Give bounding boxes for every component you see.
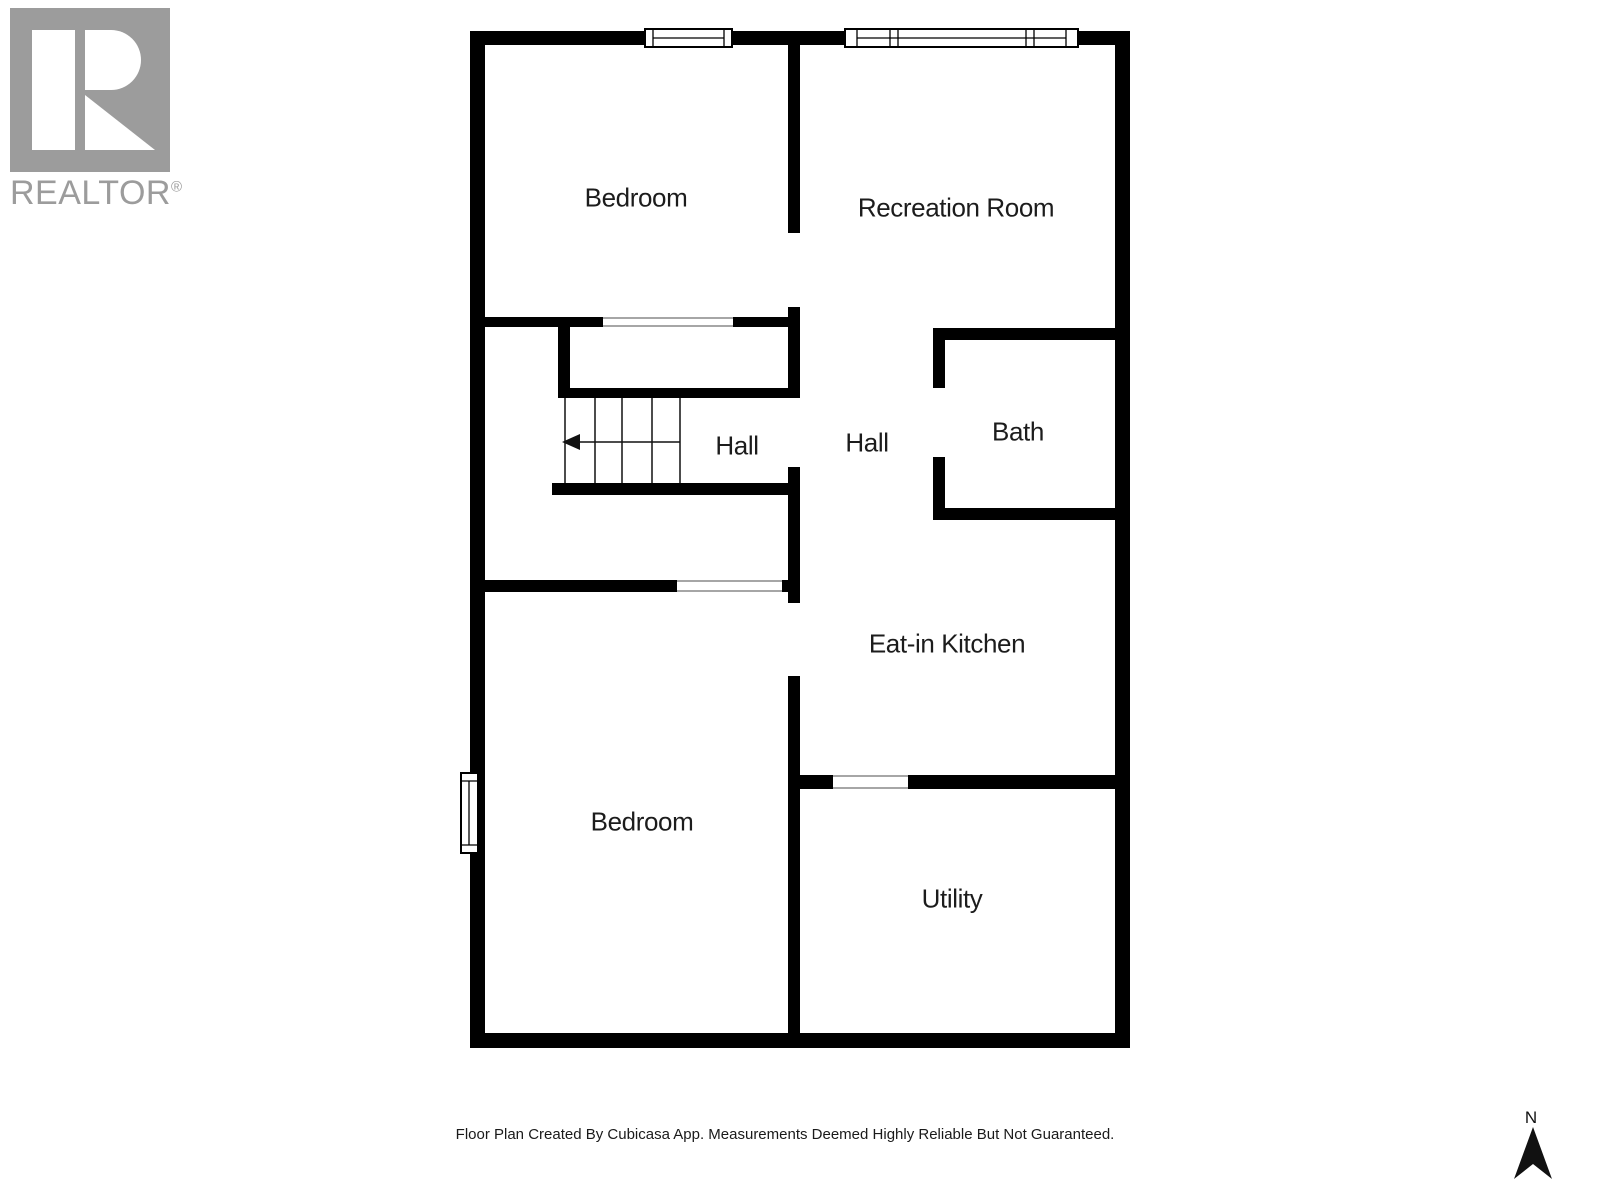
disclaimer-text: Floor Plan Created By Cubicasa App. Meas… [335,1126,1235,1143]
wall-hall-bottom [552,483,788,495]
floor-plan-page: REALTOR® [0,0,1600,1200]
room-label-eat-in-kitchen: Eat-in Kitchen [869,629,1025,660]
wall-closet-left [558,317,570,398]
wall-bedroom-top [485,580,677,592]
walls [470,31,1130,1048]
north-arrow-icon [1514,1127,1552,1179]
stairs-icon [565,398,680,483]
room-label-bedroom-lower: Bedroom [591,807,694,838]
wall-utility-right [908,775,1115,789]
wall-closet-bottom [558,388,788,398]
wall-exterior-right [1115,31,1130,1048]
wall-bedroom-top-stub [782,580,788,592]
room-label-hall-left: Hall [715,431,758,462]
north-label: N [1525,1108,1537,1128]
windows [461,29,1078,853]
wall-hall-top-right [733,317,788,327]
window-recreation-top [845,29,1078,47]
room-label-hall-right: Hall [845,428,888,459]
wall-hall-top-left [485,317,603,327]
wall-central-mid2 [788,467,800,603]
room-label-utility: Utility [922,884,983,915]
wall-central-lower [788,676,800,1033]
wall-bath-left-lower [933,457,945,508]
wall-exterior-left [470,31,485,1048]
wall-central-upper [788,45,800,233]
room-label-bath: Bath [992,417,1044,448]
window-bedroom-left [461,773,478,853]
wall-central-mid1 [788,307,800,398]
wall-utility-left [800,775,833,789]
room-label-bedroom-upper: Bedroom [585,183,688,214]
floor-plan-drawing [0,0,1600,1200]
room-label-recreation-room: Recreation Room [858,193,1054,224]
wall-exterior-bottom [470,1033,1130,1048]
wall-bath-top [933,328,1115,340]
window-bedroom-top [645,29,732,47]
wall-bath-bottom [933,508,1115,520]
